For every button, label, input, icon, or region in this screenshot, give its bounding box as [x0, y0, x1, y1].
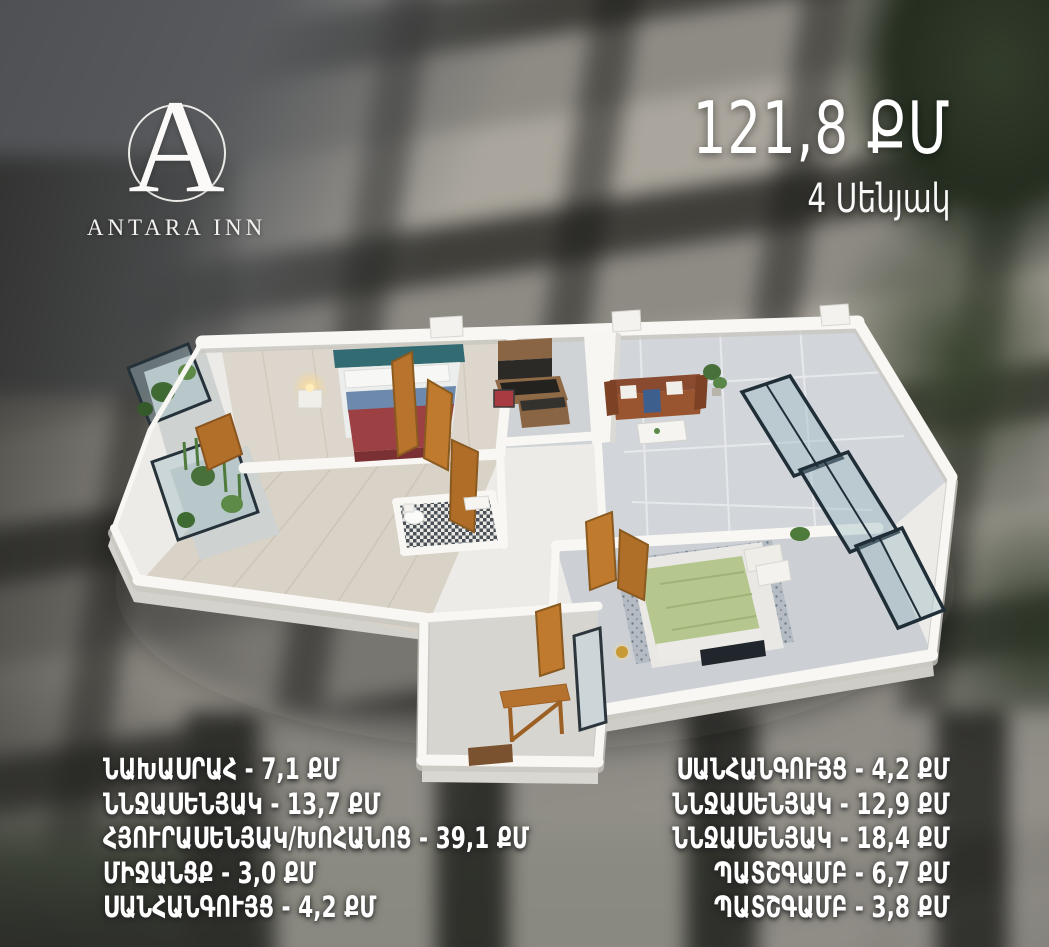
red-artwork [494, 390, 514, 407]
logo-a-icon: A [128, 79, 225, 213]
list-item: ՊԱՏՇԳԱՄԲ - 3,8 ՔՄ [673, 890, 950, 925]
floor-plan-model [108, 304, 952, 784]
list-item: ՄԻՋԱՆՑՔ - 3,0 ՔՄ [103, 856, 529, 891]
list-item: ՆՆՋԱՍԵՆՅԱԿ - 12,9 ՔՄ [673, 787, 950, 822]
sofa-blue-throw [643, 389, 661, 413]
apartment-summary: 121,8 ՔՄ 4 Սենյակ [692, 92, 950, 222]
sofa-arm [694, 374, 708, 410]
list-item: ՀՅՈՒՐԱՍԵՆՅԱԿ/ԽՈՀԱՆՈՑ - 39,1 ՔՄ [103, 821, 529, 856]
logo-circle-icon: A [128, 104, 226, 202]
lamp-icon [306, 384, 314, 392]
mirror [574, 628, 606, 730]
plant-leaf [713, 377, 727, 389]
coffee-table [637, 420, 687, 444]
nightstand [298, 390, 322, 408]
list-item: ՍԱՆՀԱՆԳՈՒՅՑ - 4,2 ՔՄ [673, 752, 950, 787]
brand-logo: A ANTARA INN [94, 104, 259, 241]
list-item: ՊԱՏՇԳԱՄԲ - 6,7 ՔՄ [673, 856, 950, 891]
toilet-tank [404, 504, 414, 512]
table-decor [654, 428, 660, 434]
door-leaf [586, 512, 616, 590]
floor-plan-poster: A ANTARA INN 121,8 ՔՄ 4 Սենյակ ՆԱԽԱՍՐԱՀ … [0, 0, 1049, 947]
door-leaf [536, 604, 564, 676]
door-leaf [450, 440, 478, 532]
gold-lamp-icon [616, 646, 628, 658]
washbasin-icon [464, 496, 490, 510]
room-list-right: ՍԱՆՀԱՆԳՈՒՅՑ - 4,2 ՔՄ ՆՆՋԱՍԵՆՅԱԿ - 12,9 Ք… [673, 752, 950, 925]
plant-pot [712, 388, 721, 396]
list-item: ՍԱՆՀԱՆԳՈՒՅՑ - 4,2 ՔՄ [103, 890, 529, 925]
area-value: 121,8 ՔՄ [692, 92, 950, 164]
kitchen-cabinet [498, 338, 552, 361]
sofa-pillow [666, 381, 683, 395]
list-item: ՆՆՋԱՍԵՆՅԱԿ - 13,7 ՔՄ [103, 787, 529, 822]
rooms-count: 4 Սենյակ [692, 176, 950, 222]
room-list-left: ՆԱԽԱՍՐԱՀ - 7,1 ՔՄ ՆՆՋԱՍԵՆՅԱԿ - 13,7 ՔՄ Հ… [103, 752, 529, 925]
sofa-pillow [620, 385, 637, 399]
list-item: ՆԱԽԱՍՐԱՀ - 7,1 ՔՄ [103, 752, 529, 787]
pillow [344, 368, 394, 388]
list-item: ՆՆՋԱՍԵՆՅԱԿ - 18,4 ՔՄ [673, 821, 950, 856]
door-leaf [424, 380, 452, 470]
plant [790, 527, 810, 541]
